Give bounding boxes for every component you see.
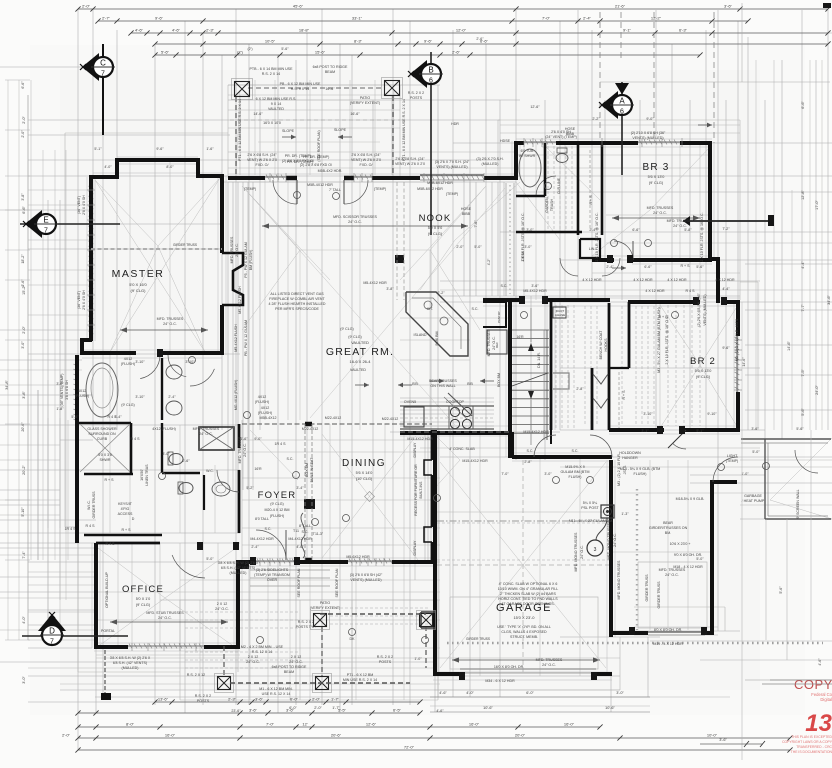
svg-text:34'-6": 34'-6": [827, 295, 831, 305]
svg-text:STRUCT. MEMB.: STRUCT. MEMB.: [510, 635, 538, 639]
svg-text:COPYRIGHT LAWS OR A COPY: COPYRIGHT LAWS OR A COPY: [782, 740, 832, 744]
svg-text:MFD. SCISSOR TRUSSES: MFD. SCISSOR TRUSSES: [333, 215, 377, 219]
svg-text:8'-3": 8'-3": [354, 39, 363, 44]
svg-text:20'-6": 20'-6": [21, 422, 25, 432]
svg-text:5'-8": 5'-8": [684, 228, 692, 232]
svg-text:A: A: [619, 97, 625, 106]
svg-text:6'-0": 6'-0": [290, 697, 299, 702]
svg-text:BUILT-INS: BUILT-INS: [419, 481, 423, 499]
svg-text:D: D: [49, 627, 55, 636]
svg-text:M15-4X12 HDR: M15-4X12 HDR: [523, 430, 549, 434]
svg-text:1'-6": 1'-6": [206, 147, 214, 151]
svg-text:(TEMP) W TRANSOM: (TEMP) W TRANSOM: [254, 573, 290, 577]
svg-text:BIBB: BIBB: [462, 212, 471, 216]
svg-text:24" O.C.: 24" O.C.: [289, 660, 303, 664]
svg-text:CURB: CURB: [97, 437, 108, 441]
svg-text:C: C: [100, 59, 106, 68]
svg-text:3'8 X 6'8 S.H. W (2) 2'6 X: 3'8 X 6'8 S.H. W (2) 2'6 X: [110, 656, 151, 660]
svg-text:SLOPE: SLOPE: [334, 128, 347, 132]
svg-text:GARBAGE: GARBAGE: [744, 494, 762, 498]
svg-text:7' TALL: 7' TALL: [329, 188, 341, 192]
svg-text:GIRDER TRUSS: GIRDER TRUSS: [92, 491, 96, 519]
svg-text:MFD. TRUSSES: MFD. TRUSSES: [157, 317, 184, 321]
svg-text:7: 7: [44, 228, 48, 235]
svg-text:R + S: R + S: [121, 528, 131, 532]
svg-text:6x8 POST TO RIDGE: 6x8 POST TO RIDGE: [272, 665, 307, 669]
svg-text:(2'): (2'): [247, 47, 252, 51]
svg-text:(3) 2'6 X 6'8 SH (42": (3) 2'6 X 6'8 SH (42": [350, 573, 383, 577]
svg-text:BR 2: BR 2: [690, 356, 716, 367]
svg-text:2'-3": 2'-3": [228, 697, 237, 702]
svg-text:ALL LISTED DIRECT VENT GAS: ALL LISTED DIRECT VENT GAS: [270, 292, 324, 296]
svg-text:7'-7": 7'-7": [801, 304, 805, 312]
svg-text:R.S. 2 X 2: R.S. 2 X 2: [408, 91, 424, 95]
svg-text:BEAM: BEAM: [284, 670, 294, 674]
svg-text:TRANSFERRED - CRC: TRANSFERRED - CRC: [796, 745, 832, 749]
svg-text:24" O.C.: 24" O.C.: [243, 443, 247, 457]
svg-text:5'-0": 5'-0": [752, 450, 760, 454]
svg-text:(FLUSH): (FLUSH): [255, 400, 269, 404]
svg-text:W/ SHWR: W/ SHWR: [519, 154, 536, 158]
svg-text:24" O.C.: 24" O.C.: [163, 322, 177, 326]
svg-text:GIRDER TRUSS: GIRDER TRUSS: [466, 637, 490, 641]
svg-text:6 X 12 BM MIN USE R.S.: 6 X 12 BM MIN USE R.S.: [256, 97, 297, 101]
svg-text:M5B-4X12: M5B-4X12: [260, 416, 277, 420]
svg-text:9'-6": 9'-6": [424, 39, 433, 44]
svg-text:6'-5": 6'-5": [393, 708, 402, 713]
svg-text:R 4 S: R 4 S: [686, 289, 696, 293]
svg-text:17'-0": 17'-0": [815, 200, 819, 210]
svg-text:5'-6": 5'-6": [779, 586, 783, 594]
svg-text:M5B-6X12 HDR: M5B-6X12 HDR: [427, 181, 453, 185]
svg-text:4 X 12 HDR: 4 X 12 HDR: [582, 278, 602, 282]
svg-text:MIN USE R.S. 2 X 14: MIN USE R.S. 2 X 14: [343, 678, 377, 682]
svg-text:16-6 X 26-4: 16-6 X 26-4: [350, 359, 372, 364]
svg-text:5'-0": 5'-0": [696, 557, 704, 561]
svg-text:PT1 - 6 X 12 BM MIN USE R.S. 2: PT1 - 6 X 12 BM MIN USE R.S. 2 X 14: [238, 99, 242, 161]
svg-text:4'-6": 4'-6": [439, 691, 447, 695]
svg-text:OVEN5: OVEN5: [404, 400, 416, 404]
svg-text:4X12: 4X12: [124, 357, 132, 361]
svg-text:POSTS TYP.: POSTS TYP.: [296, 625, 317, 629]
svg-text:8'-0": 8'-0": [166, 165, 174, 169]
svg-text:VENT) W 2'6 X 2'0: VENT) W 2'6 X 2'0: [351, 158, 381, 162]
svg-text:2'-0": 2'-0": [82, 4, 91, 9]
svg-text:B'B: B'B: [467, 382, 473, 386]
svg-text:7'-0": 7'-0": [266, 722, 275, 727]
svg-text:POSTS: POSTS: [379, 660, 392, 664]
svg-text:(9' CLG): (9' CLG): [696, 375, 711, 379]
svg-text:KEYS/IT: KEYS/IT: [118, 502, 133, 506]
svg-text:4X12: 4X12: [258, 395, 266, 399]
svg-text:6'-6": 6'-6": [801, 101, 805, 109]
svg-text:VENT) W 2'6 X 2'0: VENT) W 2'6 X 2'0: [247, 158, 277, 162]
svg-text:(9' CLG): (9' CLG): [121, 403, 134, 407]
svg-text:24" O.C.: 24" O.C.: [665, 573, 679, 577]
svg-text:4'-0": 4'-0": [466, 691, 474, 695]
svg-text:(9' CLG): (9' CLG): [428, 232, 443, 236]
svg-text:7: 7: [50, 639, 54, 646]
svg-text:2'6 X 6'8 S.H. (24": 2'6 X 6'8 S.H. (24": [247, 153, 277, 157]
svg-text:5'-2": 5'-2": [246, 486, 254, 490]
svg-text:/ HEAT PUMP: / HEAT PUMP: [742, 499, 765, 503]
svg-text:24" O.C.: 24" O.C.: [653, 211, 667, 215]
svg-text:3'-4": 3'-4": [296, 486, 304, 490]
svg-text:14'-6": 14'-6": [253, 112, 263, 116]
svg-text:3'-0": 3'-0": [524, 245, 532, 249]
svg-text:5'0 X 16'0: 5'0 X 16'0: [129, 282, 147, 287]
svg-text:M5-4X12 HDR: M5-4X12 HDR: [523, 289, 547, 293]
svg-text:3'-6": 3'-6": [249, 708, 258, 713]
svg-text:6'-0": 6'-0": [526, 691, 534, 695]
svg-text:12'-0": 12'-0": [456, 28, 467, 33]
svg-text:PTB - 6 X 14 BM MIN USE: PTB - 6 X 14 BM MIN USE: [250, 67, 294, 71]
svg-text:DK: DK: [350, 637, 356, 641]
svg-text:2'-7": 2'-7": [102, 16, 111, 21]
svg-text:T11-3": T11-3": [313, 532, 324, 536]
svg-text:DISPLAY: DISPLAY: [413, 442, 417, 458]
svg-text:2'-4": 2'-4": [168, 395, 176, 399]
svg-text:(36" VENT): (36" VENT): [77, 291, 81, 309]
svg-text:2 X 10 FLR. JSTS. @ 16" O.C.: 2 X 10 FLR. JSTS. @ 16" O.C.: [700, 212, 704, 261]
svg-text:2'-2": 2'-2": [437, 291, 445, 295]
svg-text:SHWR: SHWR: [100, 458, 111, 462]
svg-text:MFD. TRUSSES: MFD. TRUSSES: [487, 329, 491, 356]
svg-text:3'-6": 3'-6": [724, 4, 733, 9]
svg-text:2'-4": 2'-4": [251, 545, 259, 549]
svg-text:HDSE: HDSE: [500, 139, 511, 143]
svg-text:GIRDER TRUSS: GIRDER TRUSS: [645, 574, 649, 602]
svg-text:3'-10": 3'-10": [135, 360, 145, 364]
svg-text:2 X 10 FLR. JSTS. @ 16" O.C.: 2 X 10 FLR. JSTS. @ 16" O.C.: [665, 315, 669, 364]
svg-text:1R 4 S: 1R 4 S: [65, 527, 77, 531]
svg-text:MFD. MONO TRUSSES: MFD. MONO TRUSSES: [574, 532, 578, 571]
svg-text:USE R.S. 12 X 14: USE R.S. 12 X 14: [262, 692, 291, 696]
svg-text:M19 - 4 X 12 HDR: M19 - 4 X 12 HDR: [653, 642, 683, 646]
svg-text:16'0 X 10'0: 16'0 X 10'0: [263, 121, 281, 125]
svg-text:6: 6: [429, 78, 433, 85]
svg-text:7'-0": 7'-0": [542, 16, 551, 21]
svg-text:15'-6": 15'-6": [315, 50, 326, 55]
svg-text:4 X 12 HDR: 4 X 12 HDR: [715, 278, 735, 282]
svg-text:M5-6X12 HDR: M5-6X12 HDR: [346, 555, 370, 559]
svg-text:20'-2": 20'-2": [22, 465, 26, 475]
svg-text:B: B: [428, 66, 433, 75]
svg-text:R.S. 2 X 14: R.S. 2 X 14: [262, 72, 280, 76]
svg-text:VENTS) (MULLED): VENTS) (MULLED): [436, 165, 467, 169]
svg-text:(36" VENTS)(TEMP): (36" VENTS)(TEMP): [60, 373, 64, 406]
svg-text:M4-4X12 HDR: M4-4X12 HDR: [288, 537, 312, 541]
svg-text:(SEE ROOF PLAN): (SEE ROOF PLAN): [317, 130, 321, 161]
svg-text:2'-2": 2'-2": [592, 117, 600, 121]
svg-text:M5-4X12 FLUSH: M5-4X12 FLUSH: [238, 286, 242, 314]
svg-text:24" O.C.: 24" O.C.: [215, 607, 229, 611]
svg-text:(9' CLG): (9' CLG): [136, 603, 151, 607]
svg-text:4'-6": 4'-6": [135, 28, 144, 33]
svg-text:2'6 X 6'8 S.H. (24": 2'6 X 6'8 S.H. (24": [395, 157, 425, 161]
svg-text:5'-0": 5'-0": [206, 557, 214, 561]
svg-text:1'-7": 1'-7": [331, 697, 340, 702]
svg-text:S.C.: S.C.: [302, 530, 309, 534]
svg-text:4 28" FLUSH HEARTH INSTALLED: 4 28" FLUSH HEARTH INSTALLED: [268, 302, 325, 306]
svg-text:(FLUSH): (FLUSH): [270, 514, 284, 518]
svg-text:DINING: DINING: [342, 458, 386, 469]
svg-text:MFD. TRUSSES: MFD. TRUSSES: [193, 427, 220, 431]
svg-text:23'-6": 23'-6": [231, 709, 241, 713]
svg-text:45'-6": 45'-6": [293, 4, 304, 9]
svg-text:HANGER: HANGER: [622, 456, 638, 460]
svg-text:5'-8": 5'-8": [71, 415, 79, 419]
svg-text:VENTS) (MULLED): VENTS) (MULLED): [350, 578, 381, 582]
svg-text:TRASH: TRASH: [550, 199, 554, 212]
svg-text:3'-6": 3'-6": [255, 697, 264, 702]
svg-text:T11: T11: [293, 529, 299, 533]
svg-text:7'-5": 7'-5": [801, 369, 805, 377]
svg-text:BOX BM.: BOX BM.: [435, 331, 439, 346]
svg-text:9'-6": 9'-6": [156, 147, 164, 151]
svg-text:(2) 2'8 X 6'8 FXD O/: (2) 2'8 X 6'8 FXD O/: [282, 159, 314, 163]
svg-text:10'-6": 10'-6": [605, 706, 615, 710]
svg-text:3'8 X 6'8 SH: 3'8 X 6'8 SH: [65, 380, 69, 400]
svg-text:4'FIG: 4'FIG: [121, 507, 130, 511]
svg-text:3'-1": 3'-1": [641, 429, 649, 433]
svg-text:BOX BM: BOX BM: [305, 463, 309, 477]
svg-text:10'-5": 10'-5": [265, 39, 276, 44]
svg-text:1'-8": 1'-8": [56, 407, 64, 411]
svg-text:GARDEN: GARDEN: [545, 197, 549, 213]
svg-text:PER MFR'S SPECS/CODE: PER MFR'S SPECS/CODE: [275, 307, 319, 311]
svg-text:(MULLED): (MULLED): [482, 162, 499, 166]
svg-text:4'-6": 4'-6": [436, 709, 444, 713]
svg-text:7'-6": 7'-6": [474, 220, 478, 228]
svg-text:DN. 14 R.: DN. 14 R.: [537, 352, 541, 368]
svg-text:8'0 TALL: 8'0 TALL: [255, 517, 269, 521]
svg-text:2'-0": 2'-0": [312, 697, 321, 702]
svg-text:SLOPE: SLOPE: [282, 129, 295, 133]
svg-text:2'-0": 2'-0": [314, 706, 322, 710]
svg-text:9'-6": 9'-6": [155, 16, 164, 21]
svg-text:M22-4X12: M22-4X12: [302, 427, 319, 431]
svg-text:CLR.LINE: CLR.LINE: [557, 177, 561, 194]
svg-text:12'-6": 12'-6": [530, 105, 540, 109]
svg-text:D: D: [132, 517, 135, 521]
svg-text:12'-2": 12'-2": [651, 16, 662, 21]
svg-text:9'-6": 9'-6": [722, 346, 730, 350]
svg-text:JSTS: JSTS: [623, 465, 627, 474]
svg-text:THIS PLAN IS EXCEPTED: THIS PLAN IS EXCEPTED: [791, 735, 832, 739]
svg-text:PANTRY: PANTRY: [497, 311, 501, 323]
svg-text:RECESS FOR FURNITURE OR: RECESS FOR FURNITURE OR: [414, 464, 418, 516]
svg-text:1'-0": 1'-0": [741, 472, 749, 476]
svg-text:COPYR: COPYR: [794, 677, 832, 692]
svg-text:9'-1": 9'-1": [623, 28, 632, 33]
svg-text:MFD. TRUSSES: MFD. TRUSSES: [647, 206, 674, 210]
svg-text:HDR: HDR: [451, 122, 459, 126]
svg-text:DESK: DESK: [521, 251, 525, 261]
svg-text:(9' CLG): (9' CLG): [131, 288, 147, 293]
svg-text:6'-6": 6'-6": [21, 81, 25, 89]
svg-text:4'-4": 4'-4": [722, 287, 730, 291]
svg-text:20'-6": 20'-6": [331, 733, 342, 738]
svg-text:M5B-4X12 HDR: M5B-4X12 HDR: [307, 183, 333, 187]
svg-text:7'-2": 7'-2": [722, 227, 730, 231]
svg-text:GLASS SHOWER: GLASS SHOWER: [87, 427, 117, 431]
svg-text:4 X 12 HDR: 4 X 12 HDR: [667, 278, 687, 282]
svg-text:MFD. MONO TRUSSES: MFD. MONO TRUSSES: [607, 520, 611, 559]
svg-text:MFD. TRUSSES: MFD. TRUSSES: [667, 219, 694, 223]
svg-text:S.C.: S.C.: [527, 449, 534, 453]
svg-text:PT1 - 6 X 12 BM MIN USE R.S. 2: PT1 - 6 X 12 BM MIN USE R.S. 2 X 14: [402, 99, 406, 161]
svg-text:2'-4": 2'-4": [589, 228, 597, 232]
svg-text:5'-6": 5'-6": [161, 50, 170, 55]
svg-text:24" O.C.: 24" O.C.: [542, 663, 556, 667]
svg-text:MFD. TRUSSES: MFD. TRUSSES: [230, 236, 234, 263]
svg-text:2'-0": 2'-0": [21, 130, 25, 138]
svg-text:R + S: R + S: [622, 390, 626, 400]
svg-text:1'-0": 1'-0": [414, 657, 422, 661]
svg-text:CHASE: CHASE: [555, 313, 565, 317]
svg-text:MG-4X12 (FLUSH): MG-4X12 (FLUSH): [234, 380, 238, 411]
svg-text:HOOKS: HOOKS: [604, 338, 608, 352]
svg-text:4'-6": 4'-6": [296, 545, 304, 549]
svg-text:DISPLAY: DISPLAY: [413, 540, 417, 556]
svg-text:2'-3": 2'-3": [206, 28, 215, 33]
svg-text:24" O.C.: 24" O.C.: [246, 660, 260, 664]
svg-text:13: 13: [805, 710, 832, 737]
svg-text:MFD. STUB TRUSSES: MFD. STUB TRUSSES: [146, 611, 184, 615]
svg-text:(3) 2'6 SIDELIGHTS: (3) 2'6 SIDELIGHTS: [256, 568, 289, 572]
svg-text:5¼ X 5¼: 5¼ X 5¼: [583, 501, 598, 505]
svg-text:9'-0": 9'-0": [646, 117, 654, 121]
svg-text:16'-0": 16'-0": [564, 722, 575, 727]
svg-text:6'-6": 6'-6": [632, 228, 640, 232]
svg-text:5'-1": 5'-1": [696, 429, 704, 433]
svg-text:5'-6": 5'-6": [281, 47, 289, 51]
svg-text:3'-0": 3'-0": [21, 341, 25, 349]
svg-text:5'6 X 13'0: 5'6 X 13'0: [648, 175, 665, 179]
svg-text:13'-6": 13'-6": [158, 697, 169, 702]
svg-text:3'-0": 3'-0": [162, 452, 170, 456]
svg-text:20'-0": 20'-0": [515, 733, 526, 738]
svg-text:3'-0": 3'-0": [56, 382, 64, 386]
svg-text:M2 - 4 X 2 BM MIN. - USE: M2 - 4 X 2 BM MIN. - USE: [241, 645, 284, 649]
svg-text:9'-0": 9'-0": [254, 437, 262, 441]
svg-text:(10' CLG): (10' CLG): [356, 477, 373, 481]
svg-text:M5B-4X2 HDR.: M5B-4X2 HDR.: [318, 169, 343, 173]
svg-text:GULAM BM (BTM: GULAM BM (BTM: [561, 470, 590, 474]
svg-text:(TEMP): (TEMP): [446, 192, 458, 196]
svg-text:2'-6": 2'-6": [452, 50, 461, 55]
svg-text:M22-4X12: M22-4X12: [382, 417, 399, 421]
svg-text:R.S. 2 X 2: R.S. 2 X 2: [195, 694, 211, 698]
svg-text:(TEMP): (TEMP): [726, 459, 738, 463]
svg-text:FOYER: FOYER: [258, 490, 297, 501]
svg-text:6'-6": 6'-6": [22, 206, 26, 214]
svg-text:S.C.: S.C.: [572, 449, 579, 453]
svg-text:6'-0": 6'-0": [289, 706, 297, 710]
svg-text:2'-8": 2'-8": [524, 460, 532, 464]
svg-text:VAULTED: VAULTED: [268, 107, 284, 111]
svg-text:THE IS DOCUMENTATION: THE IS DOCUMENTATION: [791, 750, 832, 754]
svg-text:(9' CLG): (9' CLG): [649, 181, 664, 185]
svg-text:10/10 WWM. ON 4" GRANULAR FILL: 10/10 WWM. ON 4" GRANULAR FILL: [498, 587, 559, 591]
svg-text:M15-9⅝ X 9: M15-9⅝ X 9: [565, 465, 585, 469]
svg-text:(MULLED): (MULLED): [122, 666, 139, 670]
svg-text:(VERIFY EXTENT): (VERIFY EXTENT): [350, 101, 380, 105]
svg-text:HOLDDOWN: HOLDDOWN: [619, 451, 641, 455]
svg-text:BM (FLUSH): BM (FLUSH): [249, 250, 253, 271]
svg-text:3'-4": 3'-4": [114, 415, 122, 419]
svg-text:14'-6": 14'-6": [787, 341, 791, 351]
svg-text:(FLUSH): (FLUSH): [258, 411, 272, 415]
svg-text:24" O.C.: 24" O.C.: [580, 545, 584, 559]
svg-text:4X12 (FLUSH): 4X12 (FLUSH): [152, 427, 176, 431]
svg-text:W.I.C.: W.I.C.: [87, 500, 91, 510]
svg-text:8' TALL: 8' TALL: [299, 524, 311, 528]
svg-text:16'-0": 16'-0": [165, 733, 176, 738]
svg-text:5'6 X 14'0: 5'6 X 14'0: [356, 471, 373, 475]
svg-text:2 X 12: 2 X 12: [248, 655, 258, 659]
svg-text:(TEMP): (TEMP): [244, 187, 256, 191]
svg-text:10'-0": 10'-0": [707, 733, 718, 738]
svg-text:M1 - 6 X 12 BM MIN.: M1 - 6 X 12 BM MIN.: [259, 687, 293, 691]
svg-text:M4-4X12 HDR: M4-4X12 HDR: [250, 537, 274, 541]
svg-text:M22-4X12: M22-4X12: [325, 416, 342, 420]
svg-text:LINEN TRAS: LINEN TRAS: [145, 464, 149, 486]
svg-text:3: 3: [594, 547, 597, 553]
svg-text:5'0 X 1'0: 5'0 X 1'0: [136, 597, 151, 601]
svg-text:9 X 14: 9 X 14: [271, 102, 281, 106]
svg-text:POSTS: POSTS: [410, 96, 423, 100]
svg-text:(2) 2'10 X 6'8 SH (36": (2) 2'10 X 6'8 SH (36": [631, 131, 666, 135]
svg-text:ACCESS: ACCESS: [118, 512, 133, 516]
svg-text:5'6 X 13'0: 5'6 X 13'0: [695, 369, 712, 373]
svg-text:5'-6": 5'-6": [696, 265, 704, 269]
svg-text:ON THIS WALL: ON THIS WALL: [430, 384, 455, 388]
svg-text:1'-3": 1'-3": [621, 512, 629, 516]
svg-text:2'-8": 2'-8": [576, 387, 584, 391]
svg-text:3'-8": 3'-8": [22, 391, 26, 399]
svg-text:3'-8": 3'-8": [21, 193, 25, 201]
svg-text:R.S. 9 X 14: R.S. 9 X 14: [291, 87, 309, 91]
svg-text:SEE ROOF PLAN: SEE ROOF PLAN: [335, 568, 339, 597]
svg-text:BENCH W/ COAT: BENCH W/ COAT: [599, 330, 603, 359]
svg-text:3'-6": 3'-6": [751, 427, 759, 431]
svg-text:4" CONC. SLAB W OPTIONAL 6 X 6: 4" CONC. SLAB W OPTIONAL 6 X 6: [499, 582, 558, 586]
svg-text:BOX BM: BOX BM: [497, 373, 501, 387]
svg-text:5'-1": 5'-1": [94, 147, 102, 151]
svg-text:6'-6": 6'-6": [644, 265, 652, 269]
svg-text:6'-3": 6'-3": [679, 28, 688, 33]
svg-text:(2) 2'6 X 6'8 SH. (36": (2) 2'6 X 6'8 SH. (36": [697, 292, 701, 326]
svg-text:(VERIFY EXTENT): (VERIFY EXTENT): [310, 606, 340, 610]
svg-text:R 4 S: R 4 S: [86, 524, 96, 528]
svg-text:PATIO: PATIO: [360, 96, 370, 100]
svg-text:2 X 12: 2 X 12: [291, 655, 301, 659]
svg-text:HORIZ CONT. TIED TO FND WALLS: HORIZ CONT. TIED TO FND WALLS: [498, 597, 558, 601]
svg-text:M20-4 X 12 BM: M20-4 X 12 BM: [265, 508, 290, 512]
svg-text:PATIO: PATIO: [320, 601, 330, 605]
svg-text:COOKTOP: COOKTOP: [446, 400, 465, 404]
svg-text:M3 - (2) 2 X 10 FLR: M3 - (2) 2 X 10 FLR: [617, 454, 621, 486]
svg-text:5'0 X 5'0: 5'0 X 5'0: [428, 226, 443, 230]
svg-text:BUILT-IN SEAT: BUILT-IN SEAT: [310, 457, 314, 482]
svg-text:(3) 2'6 X 7'0 S.H.: (3) 2'6 X 7'0 S.H.: [476, 157, 503, 161]
svg-text:S.C.: S.C.: [501, 284, 508, 288]
svg-text:R + S: R + S: [104, 478, 114, 482]
svg-text:3'-10": 3'-10": [135, 395, 145, 399]
svg-text:(TEMP): (TEMP): [374, 187, 386, 191]
